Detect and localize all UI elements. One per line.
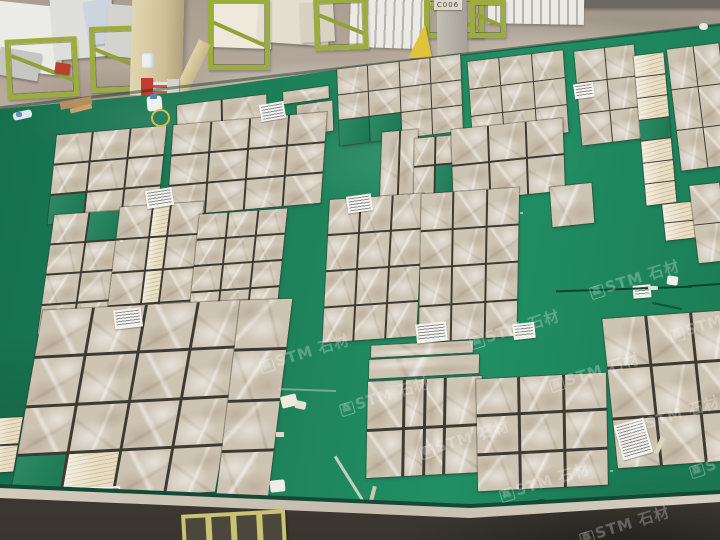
marble-tile bbox=[35, 308, 92, 356]
label-text-lines bbox=[147, 189, 172, 206]
marble-tile bbox=[284, 174, 323, 206]
watermark-logo: 鑫 bbox=[689, 463, 706, 480]
marble-tile bbox=[79, 354, 136, 402]
marble-tile bbox=[356, 268, 388, 304]
travertine-strip bbox=[634, 52, 666, 76]
marble-tile bbox=[338, 91, 369, 119]
marble-tile bbox=[139, 302, 196, 350]
marble-tile bbox=[108, 272, 144, 306]
marble-tile bbox=[502, 82, 535, 112]
travertine-strip bbox=[150, 204, 170, 236]
marble-tile bbox=[400, 84, 431, 112]
marble-tile bbox=[698, 84, 720, 127]
marble-tile bbox=[91, 129, 129, 160]
watermark-logo: 鑫 bbox=[579, 530, 596, 540]
marble-tile bbox=[487, 225, 519, 263]
marble-tile bbox=[677, 128, 707, 171]
marble-tile bbox=[354, 304, 386, 340]
travertine-strip bbox=[641, 138, 673, 162]
marble-tile bbox=[247, 146, 286, 178]
marble-tile bbox=[171, 122, 210, 154]
marble-tile bbox=[388, 266, 420, 302]
marble-tile bbox=[51, 213, 89, 244]
tile-group bbox=[322, 193, 423, 342]
marble-tile bbox=[197, 213, 227, 239]
marble-tile bbox=[431, 80, 462, 108]
marble-tile bbox=[210, 119, 249, 151]
watermark-logo: 鑫 bbox=[669, 327, 686, 344]
marble-tile bbox=[610, 108, 642, 142]
marble-tile bbox=[604, 44, 636, 78]
marble-tile bbox=[222, 401, 280, 451]
marble-tile bbox=[51, 163, 89, 194]
tile-group bbox=[380, 129, 418, 197]
marble-tile bbox=[337, 66, 368, 94]
marble-tile bbox=[550, 183, 595, 227]
marble-tile bbox=[324, 270, 356, 306]
marble-tile bbox=[454, 190, 486, 228]
marble-tile bbox=[116, 205, 152, 239]
marble-tile bbox=[46, 243, 84, 274]
label-text-lines bbox=[261, 103, 284, 119]
paint-fleck bbox=[200, 430, 204, 432]
bottle-cap bbox=[16, 112, 22, 117]
marble-tile bbox=[368, 62, 399, 90]
marble-tile bbox=[208, 150, 247, 182]
tile-group bbox=[419, 187, 519, 342]
marble-tile bbox=[88, 159, 126, 190]
marble-tile bbox=[607, 76, 639, 110]
tile-group bbox=[9, 300, 249, 503]
marble-tile bbox=[487, 187, 519, 225]
marble-tile bbox=[580, 111, 612, 145]
marble-tile bbox=[224, 237, 254, 263]
label-text-lines bbox=[575, 84, 592, 97]
marble-tile bbox=[122, 400, 179, 448]
pallet-slot bbox=[211, 516, 232, 540]
marble-tile bbox=[191, 265, 221, 291]
watermark-logo: 鑫 bbox=[339, 401, 356, 418]
foam-box bbox=[269, 479, 285, 493]
marble-tile bbox=[386, 302, 418, 338]
marble-tile bbox=[288, 112, 327, 144]
marble-tile bbox=[26, 357, 83, 405]
marble-tile bbox=[476, 377, 518, 415]
marble-tile bbox=[112, 238, 148, 272]
marble-tile bbox=[128, 126, 166, 157]
pallet-slot bbox=[185, 518, 206, 540]
marble-tile bbox=[245, 177, 284, 209]
marble-tile bbox=[469, 86, 502, 116]
marble-tile bbox=[366, 430, 401, 478]
label-text-lines bbox=[115, 310, 141, 328]
marble-tile bbox=[430, 54, 461, 82]
specimen-label bbox=[346, 193, 373, 213]
travertine-strip bbox=[664, 220, 698, 241]
marble-tile bbox=[392, 193, 424, 229]
marble-tile bbox=[672, 87, 702, 130]
marble-tile bbox=[420, 230, 452, 268]
crack-filler bbox=[648, 286, 658, 290]
paint-fleck bbox=[610, 470, 613, 472]
marble-tile bbox=[221, 263, 251, 289]
travertine-strip bbox=[635, 74, 667, 98]
watermark-logo: 鑫 bbox=[499, 487, 516, 504]
marble-tile bbox=[286, 143, 325, 175]
stone-slab bbox=[580, 0, 720, 8]
foam-piece bbox=[276, 432, 284, 437]
wooden-pallet bbox=[181, 509, 287, 540]
marble-tile bbox=[451, 126, 488, 165]
green-rack-frame bbox=[470, 0, 506, 38]
marble-tile bbox=[251, 261, 281, 287]
label-text-lines bbox=[348, 196, 371, 212]
marble-tile bbox=[419, 267, 451, 305]
marble-tile bbox=[467, 58, 500, 88]
marble-tile bbox=[693, 43, 720, 86]
watermark-logo: 鑫 bbox=[549, 377, 566, 394]
marble-tile bbox=[414, 137, 434, 166]
watermark-logo: 鑫 bbox=[629, 420, 646, 437]
white-bucket bbox=[142, 53, 155, 68]
marble-tile bbox=[358, 232, 390, 268]
stored-box bbox=[54, 62, 70, 75]
paint-fleck bbox=[120, 240, 123, 242]
specimen-label bbox=[113, 307, 143, 329]
marble-tile bbox=[194, 239, 224, 265]
marble-tile bbox=[399, 58, 430, 86]
marble-tile bbox=[390, 230, 422, 266]
specimen-label bbox=[415, 321, 448, 343]
marble-tile bbox=[453, 227, 485, 265]
green-rack-frame bbox=[313, 0, 369, 51]
specimen-label bbox=[573, 82, 595, 100]
marble-tile bbox=[694, 222, 720, 263]
marble-tile bbox=[486, 263, 518, 301]
marble-tile bbox=[527, 118, 564, 157]
travertine-strip bbox=[645, 181, 677, 205]
marble-tile bbox=[18, 405, 75, 453]
pallet-slot bbox=[262, 514, 283, 540]
label-text-lines bbox=[417, 324, 445, 342]
marble-tile bbox=[227, 211, 257, 237]
paint-fleck bbox=[520, 212, 523, 214]
green-rack-frame bbox=[208, 0, 270, 70]
tile-group bbox=[550, 183, 595, 227]
marble-tile bbox=[421, 192, 453, 230]
marble-tile bbox=[500, 54, 533, 84]
marble-tile bbox=[42, 273, 80, 304]
marble-tile bbox=[667, 47, 697, 90]
watermark-logo: 鑫 bbox=[419, 444, 436, 461]
marble-tile bbox=[326, 234, 358, 270]
marble-tile bbox=[131, 351, 188, 399]
factory-drylay-photo: C006 鑫STM 石材鑫STM 石材鑫STM 石材鑫STM 石材鑫STM 石材… bbox=[0, 0, 720, 540]
marble-tile bbox=[125, 156, 163, 187]
marble-tile bbox=[414, 166, 434, 195]
tile-group bbox=[167, 112, 327, 216]
wire-coil bbox=[151, 109, 170, 127]
rack-number-sign: C006 bbox=[434, 0, 462, 10]
missing-tile-gap bbox=[339, 117, 370, 145]
travertine-strip bbox=[142, 270, 162, 302]
watermark-logo: 鑫 bbox=[469, 334, 486, 351]
marble-tile bbox=[534, 78, 567, 108]
travertine-strip bbox=[643, 160, 675, 184]
marble-tile bbox=[254, 235, 284, 261]
marble-tile bbox=[54, 132, 92, 163]
marble-tile bbox=[574, 48, 606, 82]
marble-tile bbox=[532, 50, 565, 80]
marble-tile bbox=[169, 153, 208, 185]
white-object bbox=[699, 23, 708, 30]
jug-cap bbox=[150, 94, 157, 99]
marble-tile bbox=[521, 413, 563, 451]
marble-tile bbox=[489, 122, 526, 161]
missing-tile-gap bbox=[639, 117, 671, 141]
tile-group bbox=[414, 135, 457, 195]
marble-tile bbox=[206, 181, 245, 213]
marble-tile bbox=[380, 131, 399, 197]
watermark-logo: 鑫 bbox=[259, 358, 276, 375]
yellow-stand bbox=[408, 24, 432, 58]
marble-tile bbox=[166, 446, 223, 494]
marble-tile bbox=[453, 265, 485, 303]
marble-tile bbox=[70, 403, 127, 451]
marble-tile bbox=[689, 183, 720, 224]
watermark-logo: 鑫 bbox=[589, 284, 606, 301]
marble-tile bbox=[257, 208, 287, 234]
travertine-strip bbox=[637, 95, 669, 119]
marble-tile bbox=[369, 88, 400, 116]
marble-tile bbox=[565, 411, 607, 449]
marble-tile bbox=[234, 299, 292, 349]
pallet-slot bbox=[236, 515, 257, 540]
travertine-strip bbox=[146, 237, 166, 269]
